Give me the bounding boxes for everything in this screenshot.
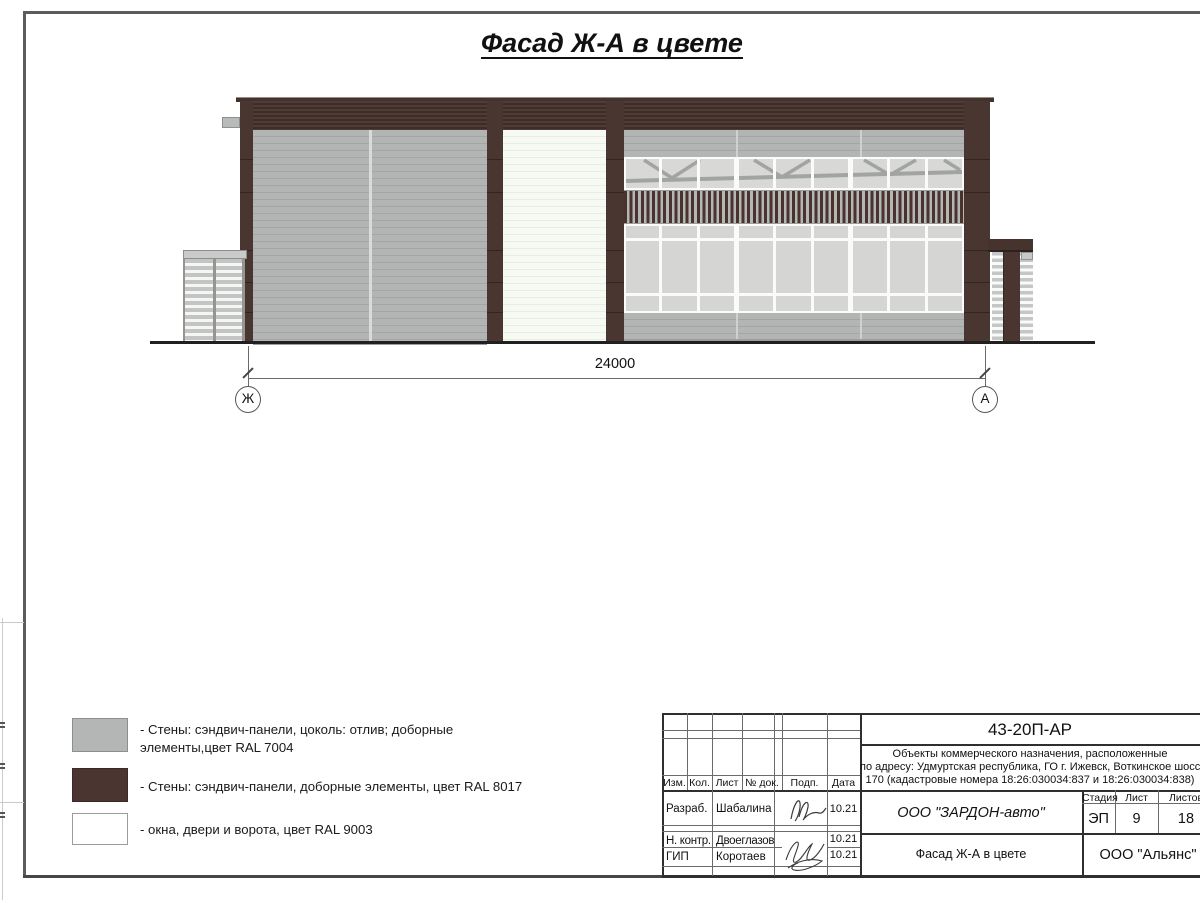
tb-header-izm: Изм. [662, 777, 687, 789]
tb-date: 10.21 [827, 849, 860, 861]
tb-sheet-value: 9 [1115, 811, 1158, 827]
window-mullion [811, 157, 814, 190]
panel-joint [736, 313, 738, 339]
legend-swatch-ral9003 [72, 813, 128, 845]
tb-line [662, 875, 1200, 878]
brown-corner-pilaster [964, 101, 990, 343]
glazing-mullion [848, 224, 853, 313]
glazing-mullion [887, 224, 890, 313]
tb-name: Двоеглазов [716, 835, 774, 847]
tb-line [662, 847, 782, 848]
margin-stamp-mark [0, 812, 5, 818]
margin-tick-line [0, 802, 24, 803]
tb-date: 10.21 [827, 803, 860, 815]
truss-silhouette [626, 159, 962, 188]
tb-line [827, 847, 860, 848]
panel-joint [736, 130, 738, 157]
tb-line [860, 833, 1200, 835]
glazing-mullion [773, 224, 776, 313]
tb-header-podp: Подп. [782, 777, 827, 789]
tb-line [662, 825, 860, 826]
glazing-transom [624, 238, 964, 241]
sandwich-panel-strip-bottom [624, 313, 964, 343]
window-mullion [887, 157, 890, 190]
tb-line [662, 775, 860, 776]
fence-right-cap [1021, 252, 1033, 260]
glazing-transom [624, 293, 964, 296]
tb-sheets-label: Листов [1158, 792, 1200, 804]
window-mullion [697, 157, 700, 190]
axis-bubble-right: А [972, 386, 998, 413]
tb-line [712, 790, 713, 876]
tb-firm: ООО "Альянс" [1082, 847, 1200, 863]
drawing-sheet: Фасад Ж-А в цвете [0, 0, 1200, 900]
tb-date: 10.21 [827, 833, 860, 845]
glazing-mullion [697, 224, 700, 313]
signature-scribble [781, 832, 827, 875]
tb-header-data: Дата [827, 777, 860, 789]
ground-line [150, 341, 1095, 344]
tb-stage-value: ЭП [1082, 811, 1115, 827]
tb-role: ГИП [666, 851, 689, 863]
brown-pilaster [606, 101, 624, 343]
tb-name: Коротаев [716, 851, 766, 863]
window-mullion [659, 157, 662, 190]
tb-name: Шабалина [716, 803, 772, 815]
tb-company: ООО "ЗАРДОН-авто" [860, 805, 1082, 821]
fence-post [242, 259, 245, 343]
window-mullion [925, 157, 928, 190]
frame-left-border [23, 11, 26, 878]
signature-scribble [785, 793, 827, 825]
tb-description-line: 170 (кадастровые номера 18:26:030034:837… [860, 774, 1200, 786]
tb-line [662, 738, 860, 739]
tb-header-list: Лист [712, 777, 742, 789]
page-title: Фасад Ж-А в цвете [12, 28, 1200, 59]
tb-header-kol: Кол. [687, 777, 712, 789]
legend-swatch-ral7004 [72, 718, 128, 752]
tb-sheet-title: Фасад Ж-А в цвете [860, 847, 1082, 861]
tb-header-ndok: № док. [742, 777, 782, 789]
tb-description-line: по адресу: Удмуртская республика, ГО г. … [860, 761, 1200, 773]
tb-description-line: Объекты коммерческого назначения, распол… [860, 748, 1200, 762]
brown-pilaster [487, 101, 503, 343]
tb-line [662, 831, 860, 832]
tb-line [860, 744, 1200, 746]
tb-sheets-value: 18 [1158, 811, 1200, 827]
window-mullion [734, 157, 739, 190]
gutter-bracket [222, 117, 240, 128]
tb-line [662, 730, 860, 731]
glazing-mullion [734, 224, 739, 313]
sandwich-panel-strip-top [624, 130, 964, 157]
dimension-value: 24000 [550, 356, 680, 372]
tb-doc-number: 43-20П-АР [860, 720, 1200, 740]
legend-label: - Стены: сэндвич-панели, доборные элемен… [140, 778, 522, 796]
dimension-line [248, 378, 985, 379]
extension-line-right [985, 346, 986, 386]
tb-role: Н. контр. [666, 835, 711, 847]
glazing-mullion [925, 224, 928, 313]
clerestory-window-band [624, 157, 964, 190]
tb-line [774, 713, 775, 876]
margin-stamp-mark [0, 763, 5, 769]
title-block: Изм. Кол. Лист № док. Подп. Дата Разраб.… [662, 713, 1200, 878]
panel-joint [860, 130, 862, 157]
fence-post [213, 259, 216, 343]
binding-margin-line [2, 618, 3, 900]
legend-swatch-ral8017 [72, 768, 128, 802]
tb-line [662, 866, 860, 867]
tb-stage-label: Стадия [1082, 792, 1115, 804]
glazing-mullion [811, 224, 814, 313]
axis-bubble-left: Ж [235, 386, 261, 413]
panel-joint [860, 313, 862, 339]
legend-label: - окна, двери и ворота, цвет RAL 9003 [140, 821, 373, 839]
margin-stamp-mark [0, 722, 5, 728]
extension-line-left [248, 346, 249, 386]
brown-louver-band [624, 190, 964, 224]
window-mullion [773, 157, 776, 190]
fence-left-cap [183, 250, 247, 259]
white-gate [503, 130, 606, 341]
fence-right-post [1003, 252, 1020, 343]
entrance-canopy [988, 239, 1033, 252]
tb-sheet-label: Лист [1115, 792, 1158, 804]
window-mullion [848, 157, 853, 190]
glazing-mullion [659, 224, 662, 313]
margin-tick-line [0, 622, 24, 623]
legend-label: - Стены: сэндвич-панели, цоколь: отлив; … [140, 721, 455, 757]
frame-top-border [23, 11, 1200, 14]
tb-role: Разраб. [666, 803, 707, 815]
fence-post [183, 259, 185, 343]
panel-joint [369, 130, 372, 341]
